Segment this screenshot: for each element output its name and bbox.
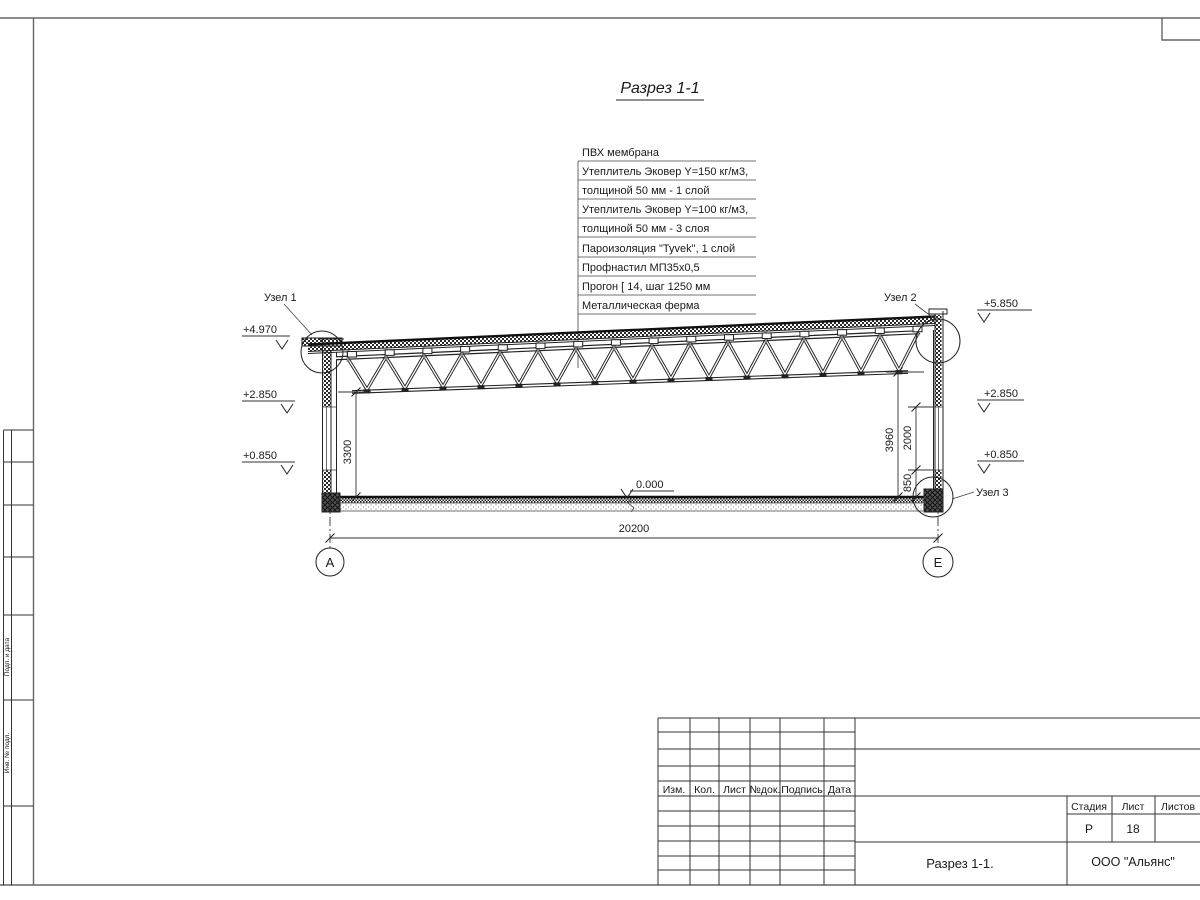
axis-e-label: Е: [934, 555, 943, 570]
tb-stage-value: Р: [1085, 822, 1093, 836]
tb-col-sheet: Лист: [723, 784, 746, 796]
level-left-mid: +2.850: [243, 389, 277, 401]
axis-bubbles: А Е: [316, 547, 953, 577]
left-footing: [322, 493, 340, 512]
node-3-label: Узел 3: [976, 487, 1009, 499]
spec-item: Утеплитель Эковер Y=150 кг/м3,: [582, 166, 748, 178]
floor-slab: [322, 489, 943, 512]
spec-item: Утеплитель Эковер Y=100 кг/м3,: [582, 204, 748, 216]
spec-item: Профнастил МП35х0,5: [582, 262, 700, 274]
node-1-label: Узел 1: [264, 292, 297, 304]
spec-item: толщиной 50 мм - 3 слоя: [582, 223, 709, 235]
dim-left-height: 3300: [342, 440, 354, 464]
left-wall: [320, 339, 344, 512]
drawing-sheet: Подп. и дата Инв. № подл. Разрез 1-1 ПВХ…: [0, 0, 1200, 900]
right-footing: [924, 489, 943, 512]
dim-sill: 850: [902, 474, 914, 492]
spec-item: ПВХ мембрана: [582, 147, 660, 159]
left-stamp-column: Подп. и дата Инв. № подл.: [4, 430, 34, 885]
level-right-mid: +2.850: [984, 388, 1018, 400]
level-zero: 0.000: [636, 479, 664, 491]
tb-col-doc: №док.: [750, 784, 781, 796]
level-left-top: +4.970: [243, 324, 277, 336]
dim-window: 2000: [902, 426, 914, 450]
level-right-low: +0.850: [984, 449, 1018, 461]
tb-company: ООО "Альянс": [1091, 855, 1175, 869]
tb-sheets-label: Листов: [1161, 801, 1196, 813]
axis-a-label: А: [326, 555, 335, 570]
tb-col-qty: Кол.: [694, 784, 715, 796]
tb-col-rev: Изм.: [663, 784, 686, 796]
dimensions: 20200 3300 3960 2000 850: [326, 368, 943, 549]
drawing-canvas: Подп. и дата Инв. № подл. Разрез 1-1 ПВХ…: [0, 0, 1200, 900]
dim-right-height: 3960: [884, 428, 896, 452]
spec-item: Прогон [ 14, шаг 1250 мм: [582, 281, 710, 293]
spec-item: Металлическая ферма: [582, 300, 700, 312]
frame-corner-box: [1162, 18, 1200, 40]
spec-item: толщиной 50 мм - 1 слой: [582, 185, 709, 197]
stamp-side-label-2: Инв. № подл.: [4, 733, 11, 774]
building-section: [302, 309, 947, 512]
level-left-low: +0.850: [243, 450, 277, 462]
right-wall: [929, 309, 947, 512]
tb-sheet-label: Лист: [1122, 801, 1145, 813]
spec-item: Пароизоляция "Tyvek", 1 слой: [582, 243, 735, 255]
tb-col-date: Дата: [828, 784, 851, 796]
dim-total: 20200: [619, 523, 650, 535]
tb-col-sign: Подпись: [781, 784, 823, 796]
tb-sheet-value: 18: [1126, 822, 1140, 836]
drawing-title: Разрез 1-1: [620, 80, 699, 97]
node-2-label: Узел 2: [884, 292, 917, 304]
tb-doc-name: Разрез 1-1.: [926, 856, 993, 871]
stamp-side-label-1: Подп. и дата: [4, 637, 11, 676]
level-right-top: +5.850: [984, 298, 1018, 310]
tb-stage-label: Стадия: [1071, 801, 1107, 813]
title-block: Изм. Кол. Лист №док. Подпись Дата Стадия…: [658, 718, 1200, 885]
